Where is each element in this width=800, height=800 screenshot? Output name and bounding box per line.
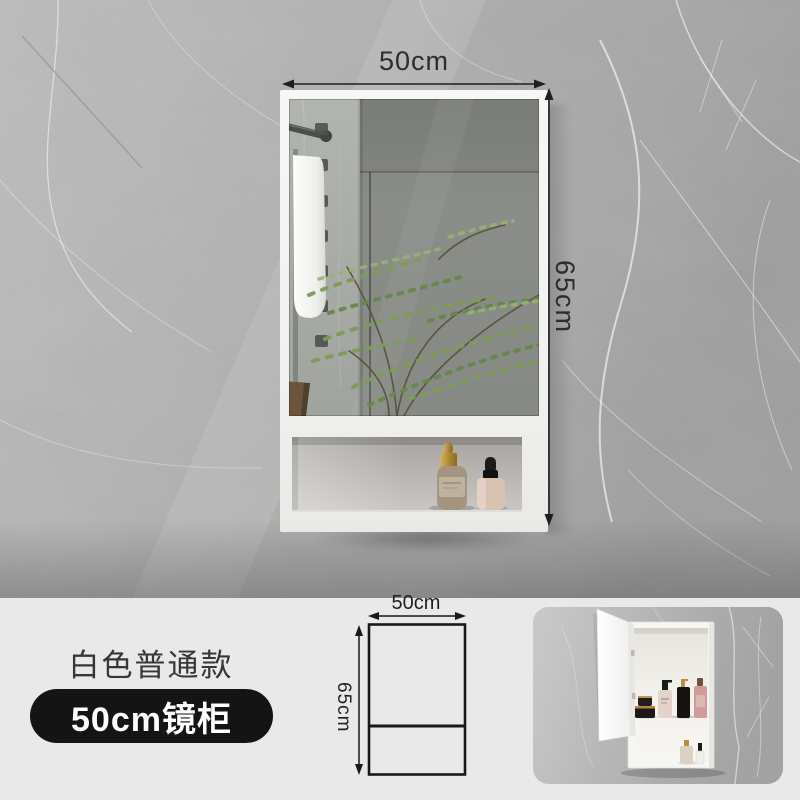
thumbnail-cabinet-shadow xyxy=(621,768,725,778)
variant-badge: 50cm镜柜 xyxy=(30,689,273,743)
width-dimension-label: 50cm xyxy=(280,46,548,77)
width-dimension-arrow xyxy=(280,76,548,92)
open-cabinet-thumbnail xyxy=(533,607,783,784)
mirror-reflection xyxy=(289,99,539,416)
variant-name: 白色普通款 xyxy=(38,640,264,685)
shelf-front-edge xyxy=(292,510,522,512)
main-product-photo: 50cm 65cm xyxy=(0,0,800,598)
product-card: 50cm 65cm 白色普通款 50cm镜柜 50cm xyxy=(0,0,800,800)
variant-badge-label: 50cm镜柜 xyxy=(71,692,232,741)
diagram-height-label: 65cm xyxy=(332,682,354,732)
mirror-door xyxy=(289,99,539,416)
size-diagram: 50cm 65cm xyxy=(330,590,480,794)
mirror-cabinet xyxy=(280,90,548,532)
height-dimension-label: 65cm xyxy=(549,260,580,334)
open-shelf xyxy=(292,437,522,510)
